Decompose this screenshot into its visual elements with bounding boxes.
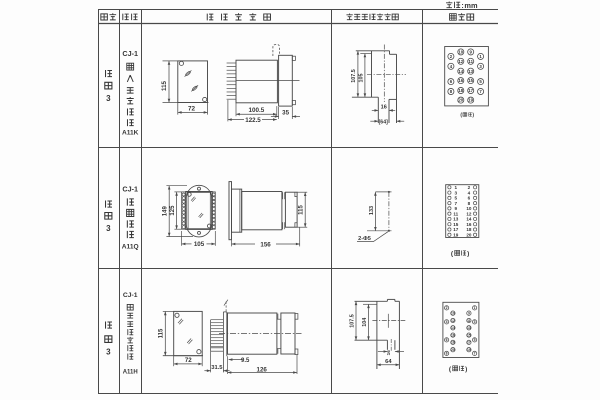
svg-text:): ): [467, 251, 469, 258]
svg-text:20: 20: [458, 98, 463, 103]
svg-text:12: 12: [466, 211, 472, 216]
svg-text:CJ-1: CJ-1: [122, 49, 138, 58]
svg-text:8: 8: [468, 201, 471, 206]
svg-text:10: 10: [451, 312, 455, 316]
svg-text:7: 7: [479, 89, 482, 94]
svg-text:mm: mm: [464, 1, 478, 10]
svg-text:115: 115: [159, 328, 165, 338]
svg-text:31.5: 31.5: [211, 365, 223, 371]
svg-text:11: 11: [467, 319, 471, 323]
svg-text:4: 4: [468, 190, 471, 195]
svg-text:18: 18: [466, 227, 472, 232]
svg-text:18: 18: [458, 88, 463, 93]
svg-text:9: 9: [468, 312, 470, 316]
svg-text:(: (: [451, 251, 454, 258]
svg-text:2: 2: [450, 54, 453, 59]
svg-text:13: 13: [467, 326, 471, 330]
svg-text:14: 14: [466, 217, 472, 222]
svg-text:100.5: 100.5: [249, 107, 265, 114]
svg-text:3: 3: [106, 94, 111, 103]
svg-text:12: 12: [451, 319, 455, 323]
svg-text:8: 8: [450, 89, 453, 94]
svg-text:107.5: 107.5: [350, 314, 356, 328]
svg-text:13: 13: [468, 69, 473, 74]
svg-text:149: 149: [162, 206, 168, 217]
svg-text:10: 10: [466, 206, 472, 211]
svg-text:19: 19: [453, 232, 459, 237]
svg-text:105: 105: [194, 241, 205, 248]
svg-text:9: 9: [470, 50, 473, 55]
svg-text:14: 14: [451, 326, 455, 330]
svg-text:125: 125: [170, 205, 176, 216]
svg-text:12: 12: [458, 59, 463, 64]
svg-text:(: (: [449, 366, 452, 373]
svg-text:156: 156: [260, 241, 271, 248]
svg-text:133: 133: [369, 206, 375, 215]
svg-text:18: 18: [451, 341, 455, 345]
svg-text:[64]: [64]: [379, 120, 388, 126]
svg-text:CJ-1: CJ-1: [123, 292, 138, 299]
svg-text:2-Φ5: 2-Φ5: [358, 236, 371, 242]
svg-text:17: 17: [453, 227, 459, 232]
svg-text:20: 20: [451, 348, 455, 352]
svg-text:17: 17: [467, 341, 471, 345]
svg-text:19: 19: [467, 348, 471, 352]
svg-text:5: 5: [455, 196, 458, 201]
svg-text:CJ-1: CJ-1: [122, 185, 138, 194]
svg-text:A11H: A11H: [123, 370, 138, 376]
svg-text:115: 115: [299, 205, 305, 215]
svg-text:9.5: 9.5: [241, 358, 250, 364]
svg-text:122.5: 122.5: [245, 117, 261, 124]
svg-text:4: 4: [446, 320, 448, 324]
svg-text:15: 15: [453, 222, 459, 227]
svg-text:16: 16: [458, 78, 463, 83]
svg-text:6: 6: [468, 196, 471, 201]
svg-text:4: 4: [450, 64, 453, 69]
svg-text:20: 20: [466, 232, 472, 237]
svg-text:3: 3: [455, 190, 458, 195]
svg-text:115: 115: [161, 80, 168, 91]
svg-text:16: 16: [466, 222, 472, 227]
svg-text:8: 8: [446, 352, 448, 356]
svg-text:1: 1: [479, 54, 482, 59]
svg-text:A11Q: A11Q: [122, 244, 139, 251]
svg-text:5: 5: [479, 79, 482, 84]
svg-text:7: 7: [455, 201, 458, 206]
svg-text:16: 16: [451, 333, 455, 337]
svg-text:6: 6: [450, 79, 453, 84]
svg-text:1: 1: [455, 185, 458, 190]
svg-text:72: 72: [188, 106, 196, 113]
svg-text:1: 1: [474, 306, 476, 310]
svg-text:35: 35: [282, 110, 289, 117]
svg-text:15: 15: [467, 333, 471, 337]
svg-text:2: 2: [468, 185, 471, 190]
svg-text:15: 15: [468, 78, 473, 83]
svg-text:14: 14: [458, 69, 463, 74]
svg-text:9: 9: [455, 206, 458, 211]
svg-text:64: 64: [385, 359, 392, 365]
svg-text:3: 3: [106, 348, 111, 357]
svg-text:16: 16: [381, 105, 387, 111]
svg-text:104: 104: [362, 318, 368, 327]
svg-text:72: 72: [185, 357, 192, 364]
svg-text:A11K: A11K: [122, 130, 139, 137]
svg-text:126: 126: [257, 366, 268, 373]
svg-text:10: 10: [458, 50, 463, 55]
svg-text:13: 13: [453, 217, 459, 222]
svg-text:107.5: 107.5: [351, 69, 357, 83]
svg-text:7: 7: [474, 352, 476, 356]
svg-text:3: 3: [474, 320, 476, 324]
svg-text:6: 6: [446, 338, 448, 342]
svg-text:19: 19: [468, 98, 473, 103]
svg-text:): ): [472, 113, 474, 119]
svg-text:5: 5: [474, 338, 476, 342]
svg-text:3: 3: [106, 224, 111, 233]
svg-text:17: 17: [468, 88, 473, 93]
svg-text:): ): [465, 366, 467, 373]
svg-text:3: 3: [479, 64, 482, 69]
svg-text:2: 2: [446, 306, 448, 310]
svg-text:16: 16: [386, 350, 391, 356]
svg-text:105: 105: [359, 74, 365, 83]
svg-text:11: 11: [468, 59, 473, 64]
svg-text:11: 11: [453, 211, 458, 216]
svg-text:(: (: [460, 113, 462, 119]
